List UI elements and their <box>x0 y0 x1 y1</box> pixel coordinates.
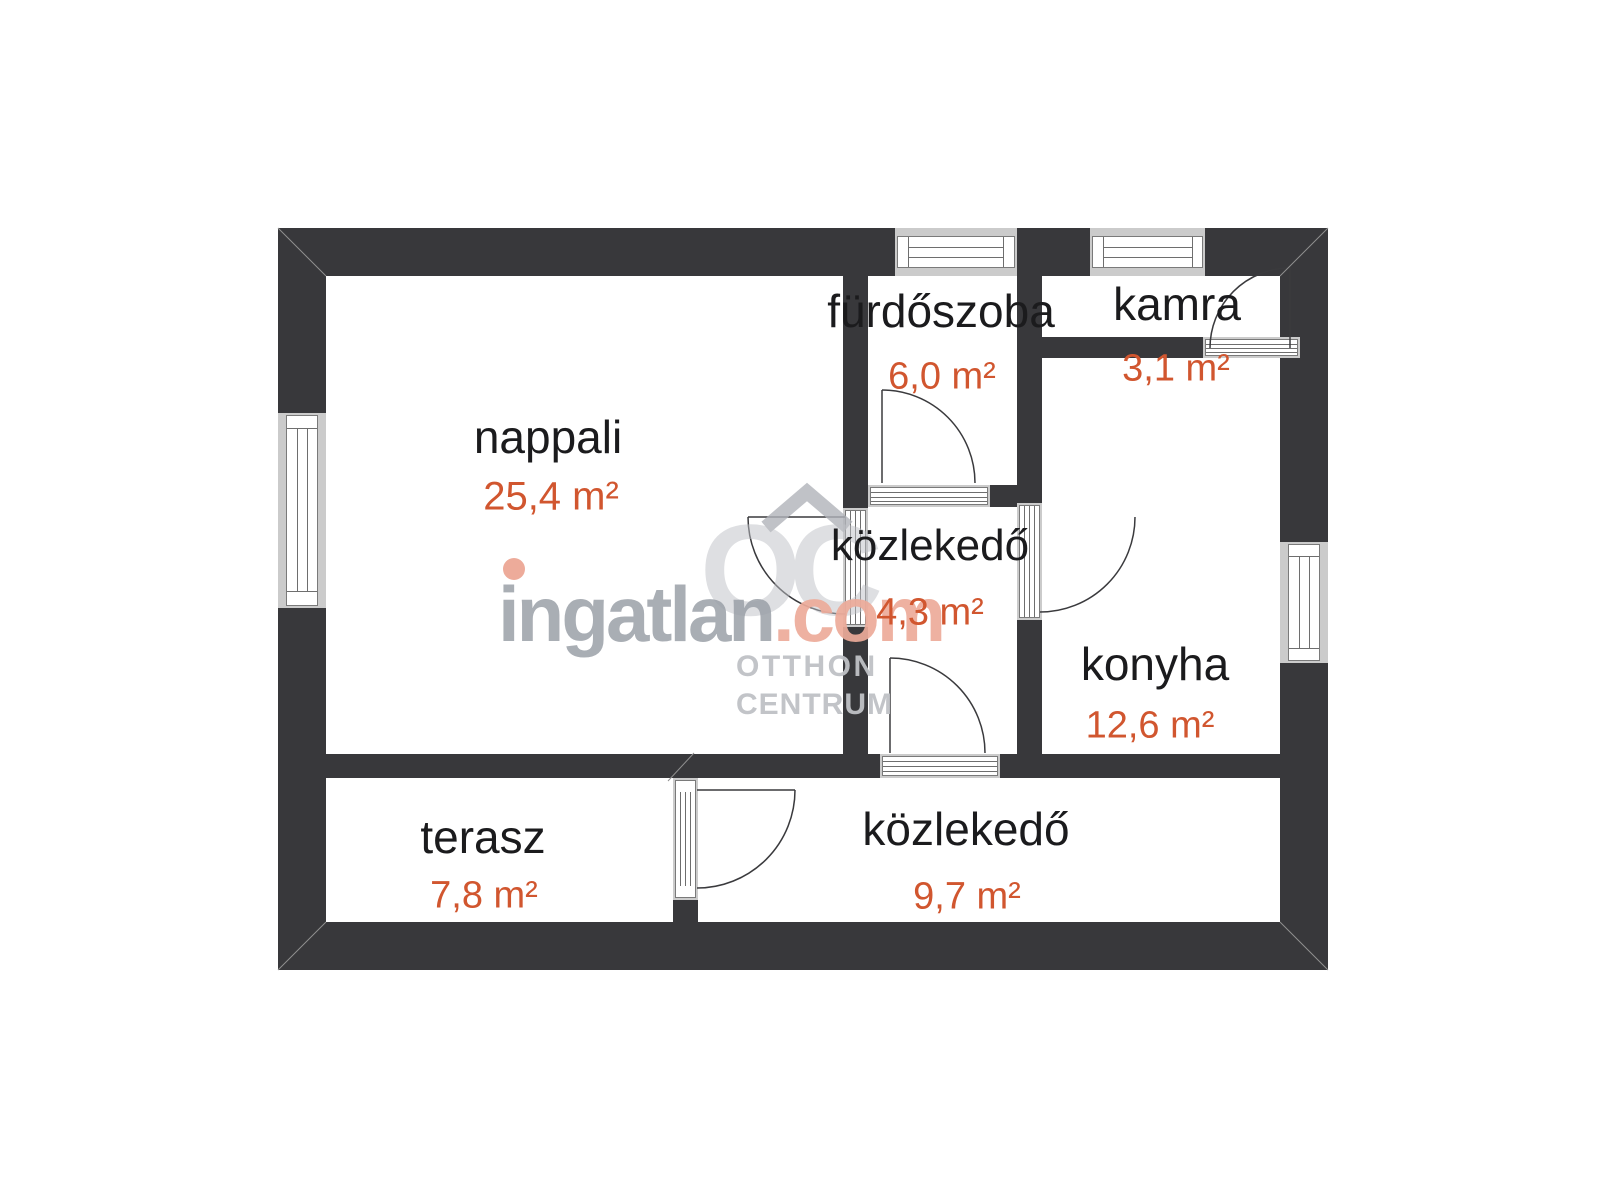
room-area-kamra: 3,1 m² <box>1122 348 1230 391</box>
floor-plan-canvas: OC ingatlan.com OTTHON CENTRUM nappali 2… <box>0 0 1600 1200</box>
room-name-kamra: kamra <box>1113 277 1241 331</box>
room-name-furdoszoba: fürdőszoba <box>827 284 1055 338</box>
room-name-kozlekedo-lower: közlekedő <box>862 802 1069 856</box>
room-area-kozlekedo-middle: 4,3 m² <box>876 592 984 635</box>
room-area-kozlekedo-lower: 9,7 m² <box>913 876 1021 919</box>
watermark-brand-name: ingatlan <box>498 570 773 658</box>
watermark-centrum: CENTRUM <box>736 690 893 720</box>
room-area-konyha: 12,6 m² <box>1086 705 1215 748</box>
room-name-kozlekedo-middle: közlekedő <box>831 521 1029 571</box>
room-area-terasz: 7,8 m² <box>430 875 538 918</box>
room-area-furdoszoba: 6,0 m² <box>888 356 996 399</box>
watermark-otthon: OTTHON <box>736 652 878 682</box>
room-name-terasz: terasz <box>420 810 545 864</box>
watermark-i-dot <box>503 558 525 580</box>
room-name-nappali: nappali <box>474 410 622 464</box>
room-area-nappali: 25,4 m² <box>483 475 619 520</box>
room-name-konyha: konyha <box>1081 637 1229 691</box>
